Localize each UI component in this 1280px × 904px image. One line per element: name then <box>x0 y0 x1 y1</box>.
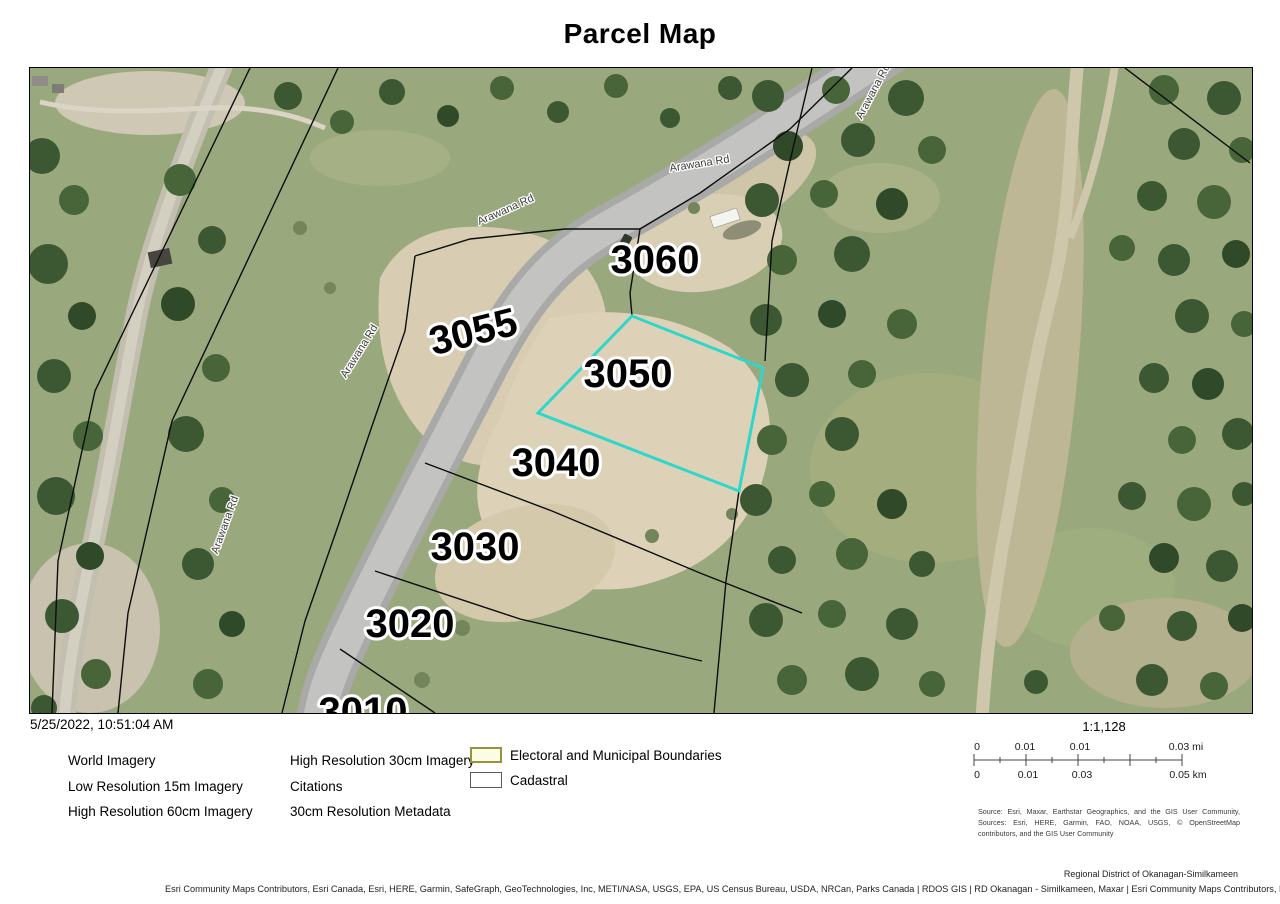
scale-mi-label: 0 <box>974 741 980 753</box>
legend-column-1: World Imagery Low Resolution 15m Imagery… <box>68 748 253 825</box>
legend-item: Citations <box>290 774 475 800</box>
legend-item: 30cm Resolution Metadata <box>290 799 475 825</box>
legend-item: High Resolution 30cm Imagery <box>290 748 475 774</box>
legend-column-2: High Resolution 30cm Imagery Citations 3… <box>290 748 475 825</box>
page: Parcel Map <box>0 0 1280 904</box>
scale-km-label: 0.01 <box>1018 769 1039 781</box>
scale-km-label: 0.05 km <box>1169 769 1207 781</box>
scale-bar: 0 0.01 0.01 0.03 mi 0 0.01 0.03 0.05 km <box>958 738 1210 784</box>
scale-mi-label: 0.03 mi <box>1169 741 1203 753</box>
parcel-label-3010: 3010 <box>319 690 408 713</box>
page-title: Parcel Map <box>0 18 1280 50</box>
legend-item: High Resolution 60cm Imagery <box>68 799 253 825</box>
scale-mi-label: 0.01 <box>1070 741 1091 753</box>
parcel-label-3040: 3040 <box>512 441 601 485</box>
scale-km-label: 0.03 <box>1072 769 1093 781</box>
legend-item: World Imagery <box>68 748 253 774</box>
scale-ratio: 1:1,128 <box>1014 719 1194 734</box>
parcel-label-3020: 3020 <box>366 602 455 646</box>
district-credit: Regional District of Okanagan-Similkamee… <box>1064 869 1238 879</box>
scale-km-label: 0 <box>974 769 980 781</box>
export-datetime: 5/25/2022, 10:51:04 AM <box>30 717 173 732</box>
parcel-label-3030: 3030 <box>431 525 520 569</box>
parcel-label-3060: 3060 <box>611 238 700 282</box>
legend-item: Electoral and Municipal Boundaries <box>510 748 722 763</box>
legend-item: Low Resolution 15m Imagery <box>68 774 253 800</box>
legend-swatch-cadastral <box>470 772 502 788</box>
aerial-imagery: Arawana Rd Arawana Rd Arawana Rd Arawana… <box>30 68 1252 713</box>
parcel-label-3050: 3050 <box>584 352 673 396</box>
attribution-line: Esri Community Maps Contributors, Esri C… <box>165 884 1280 894</box>
scale-mi-label: 0.01 <box>1015 741 1036 753</box>
source-credits: Source: Esri, Maxar, Earthstar Geographi… <box>978 806 1240 839</box>
legend-item: Cadastral <box>510 773 568 788</box>
legend-swatch-electoral <box>470 747 502 763</box>
map-canvas[interactable]: Arawana Rd Arawana Rd Arawana Rd Arawana… <box>29 67 1253 714</box>
